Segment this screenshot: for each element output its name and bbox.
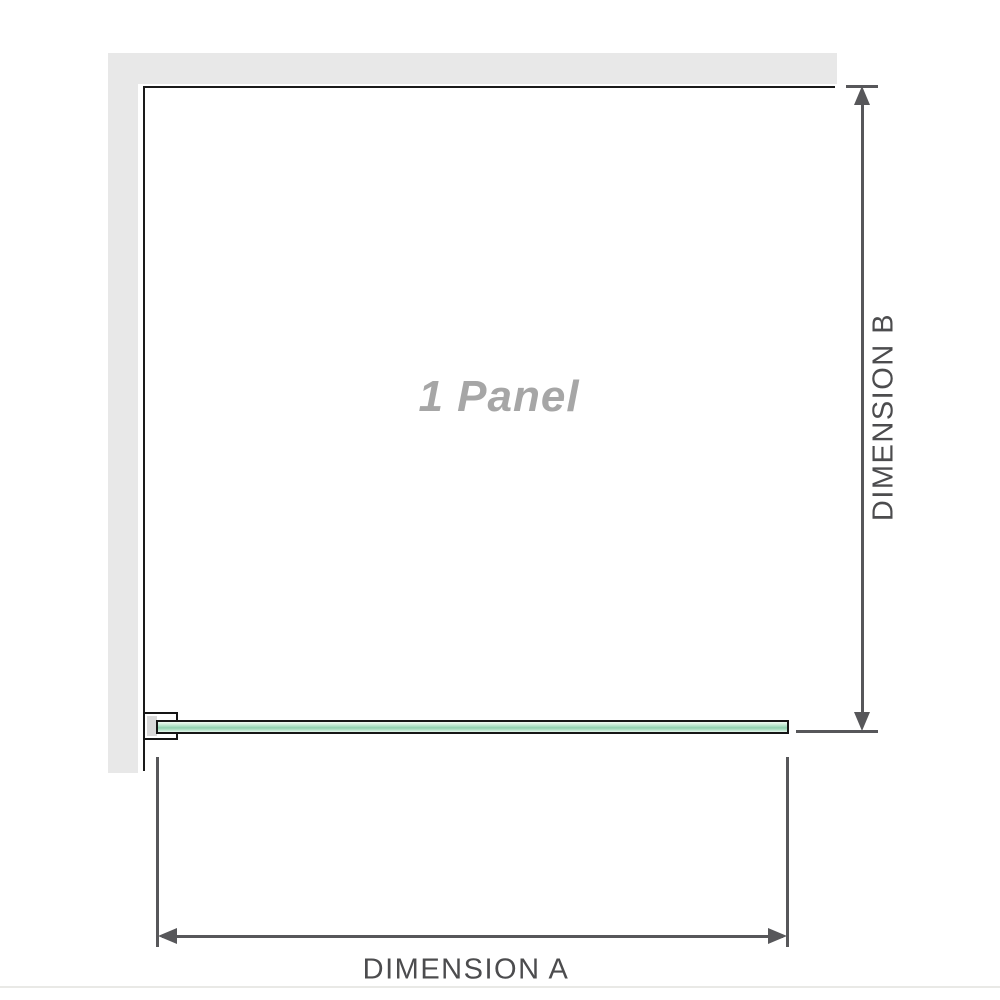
- dimension-a-label: DIMENSION A: [363, 954, 570, 987]
- arrow-down-icon: [854, 712, 870, 731]
- arrow-left-icon: [158, 928, 177, 944]
- panel-area-left-border: [143, 86, 145, 771]
- arrow-right-icon: [768, 928, 787, 944]
- wall-top: [108, 53, 837, 84]
- page-bottom-hairline: [0, 986, 1000, 988]
- dimension-a-extension-left: [156, 757, 159, 947]
- wall-left: [108, 53, 138, 773]
- glass-panel: [156, 720, 789, 734]
- dimension-b-label: DIMENSION B: [868, 313, 901, 521]
- panel-dimension-diagram: 1 Panel DIMENSION B DIMENSION A: [0, 0, 1000, 1000]
- arrow-up-icon: [854, 86, 870, 105]
- panel-area-top-border: [143, 86, 835, 88]
- panel-count-label: 1 Panel: [418, 372, 579, 422]
- dimension-a-extension-right: [786, 757, 789, 947]
- dimension-a-line: [162, 935, 783, 938]
- dimension-b-line: [861, 100, 864, 717]
